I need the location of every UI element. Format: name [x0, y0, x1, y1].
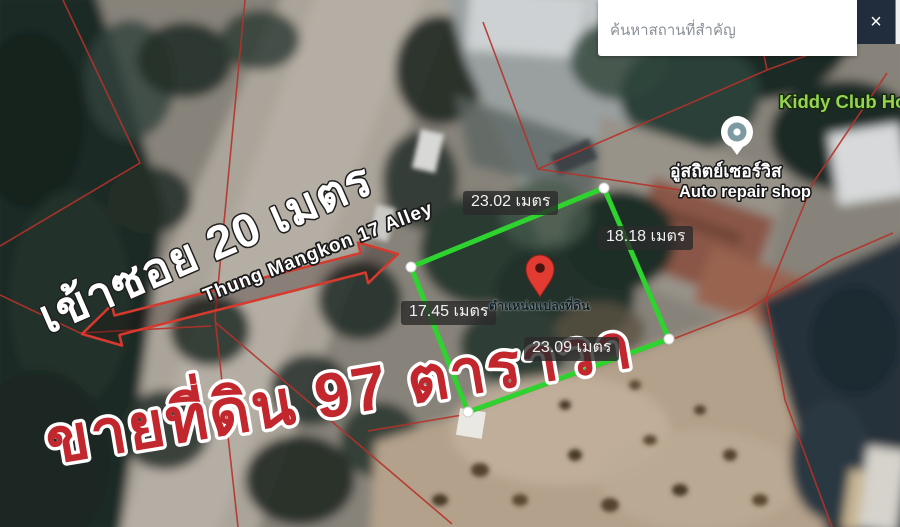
auto-repair-poi-marker[interactable]	[721, 116, 753, 155]
measure-bottom-label: 23.09 เมตร	[524, 337, 619, 361]
auto-repair-type-label: Auto repair shop	[679, 183, 811, 201]
kiddy-club-label: Kiddy Club Ho	[779, 91, 900, 112]
measure-left-label: 17.45 เมตร	[401, 301, 496, 325]
edge-button-sliver	[896, 0, 900, 44]
annotation-layer: Thung Mangkon 17 Alley เข้าซอย 20 เมตร ข…	[0, 0, 900, 527]
land-position-pin[interactable]	[526, 255, 554, 297]
pin-caption: ตำแหน่งแปลงที่ดิน	[489, 296, 590, 316]
search-bar: ×	[598, 0, 895, 44]
clear-search-button[interactable]: ×	[857, 0, 895, 44]
map-canvas[interactable]: Thung Mangkon 17 Alley เข้าซอย 20 เมตร ข…	[0, 0, 900, 527]
auto-repair-name-label: อู่สถิตย์เซอร์วิส	[670, 160, 782, 183]
measure-top-label: 23.02 เมตร	[463, 191, 558, 215]
search-input[interactable]	[598, 0, 857, 56]
measure-right-label: 18.18 เมตร	[598, 226, 693, 250]
